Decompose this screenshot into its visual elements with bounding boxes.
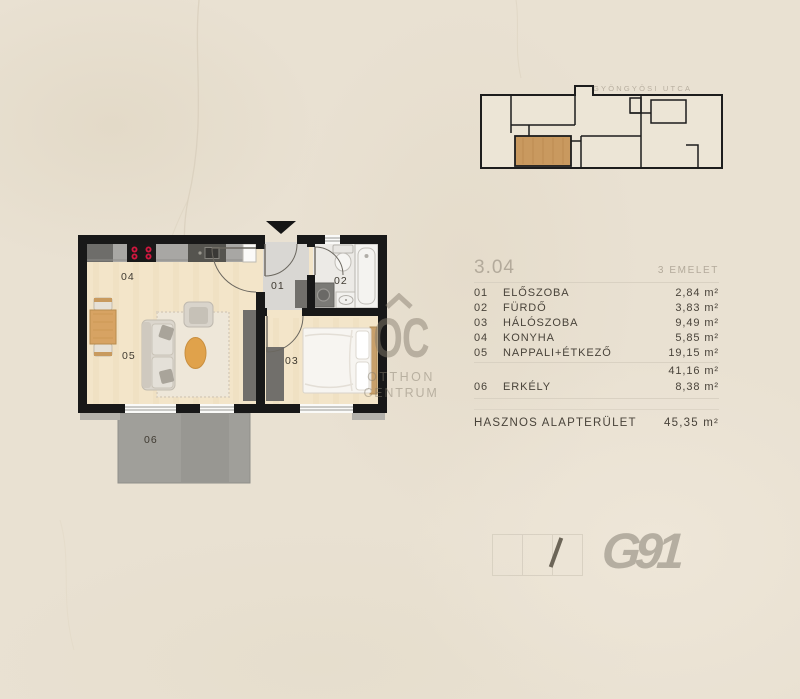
room-name: ELŐSZOBA xyxy=(503,287,675,299)
floor-plan: 04 01 02 05 03 06 xyxy=(70,214,396,490)
architect-logo xyxy=(492,530,588,578)
room-label-02: 02 xyxy=(334,275,348,287)
floorplan-sheet: GYÖNGYÖSI UTCA xyxy=(0,0,800,699)
room-label-04: 04 xyxy=(121,271,135,283)
toilet-icon xyxy=(333,245,353,271)
entrance-arrow-icon xyxy=(266,221,296,234)
room-number: 06 xyxy=(474,381,503,393)
kitchen-sink-icon xyxy=(188,244,226,262)
total-area: 45,35 m² xyxy=(664,417,719,429)
street-label: GYÖNGYÖSI UTCA xyxy=(593,84,692,93)
entrance-cabinet xyxy=(295,280,307,308)
room-row-04: 04 KONYHA 5,85 m² xyxy=(474,332,719,347)
armchair xyxy=(184,302,213,327)
room-list: 3.04 3 EMELET 01 ELŐSZOBA 2,84 m² 02 FÜR… xyxy=(474,257,719,429)
g91-logo: G91 xyxy=(600,526,734,578)
architect-logo-square xyxy=(522,534,553,576)
room-area: 2,84 m² xyxy=(675,287,719,299)
room-label-06: 06 xyxy=(144,434,158,446)
architect-logo-square xyxy=(492,534,523,576)
room-label-03: 03 xyxy=(285,355,299,367)
room-list-header: 3.04 3 EMELET xyxy=(474,257,719,283)
washing-machine-icon xyxy=(313,283,334,307)
room-label-01: 01 xyxy=(271,280,285,292)
room-row-03: 03 HÁLÓSZOBA 9,49 m² xyxy=(474,317,719,332)
watermark-line2: CENTRUM xyxy=(353,386,449,400)
room-label-05: 05 xyxy=(122,350,136,362)
room-number: 01 xyxy=(474,287,503,299)
room-name: HÁLÓSZOBA xyxy=(503,317,675,329)
room-name: NAPPALI+ÉTKEZŐ xyxy=(503,347,668,359)
unit-number: 3.04 xyxy=(474,257,515,279)
room-area: 19,15 m² xyxy=(668,347,719,359)
room-name: ERKÉLY xyxy=(503,381,675,393)
room-row-05: 05 NAPPALI+ÉTKEZŐ 19,15 m² xyxy=(474,347,719,363)
dining-table xyxy=(90,298,116,356)
floor-label: 3 EMELET xyxy=(658,265,719,276)
living-wardrobe xyxy=(243,310,256,401)
stove-icon xyxy=(127,244,156,262)
room-number: 04 xyxy=(474,332,503,344)
sofa xyxy=(142,320,175,390)
otthon-centrum-watermark: OC OTTHON CENTRUM xyxy=(353,293,449,400)
total-label: HASZNOS ALAPTERÜLET xyxy=(474,417,637,429)
room-name: FÜRDŐ xyxy=(503,302,675,314)
kitchen-cabinet xyxy=(243,244,256,262)
room-number: 02 xyxy=(474,302,503,314)
total-separator xyxy=(474,409,719,410)
watermark-line1: OTTHON xyxy=(353,370,449,384)
bedroom-wardrobe xyxy=(266,347,284,401)
watermark-monogram: OC xyxy=(368,312,433,364)
subtotal-row: 41,16 m² xyxy=(474,365,719,380)
site-plan: GYÖNGYÖSI UTCA xyxy=(478,78,724,172)
balcony xyxy=(80,413,385,483)
room-area: 9,49 m² xyxy=(675,317,719,329)
room-area: 8,38 m² xyxy=(675,381,719,393)
room-area: 5,85 m² xyxy=(675,332,719,344)
total-row: HASZNOS ALAPTERÜLET 45,35 m² xyxy=(474,417,719,429)
subtotal-area: 41,16 m² xyxy=(668,365,719,377)
room-row-02: 02 FÜRDŐ 3,83 m² xyxy=(474,302,719,317)
room-row-01: 01 ELŐSZOBA 2,84 m² xyxy=(474,287,719,302)
coffee-table xyxy=(185,338,206,369)
room-name: KONYHA xyxy=(503,332,675,344)
room-number: 05 xyxy=(474,347,503,359)
room-number: 03 xyxy=(474,317,503,329)
room-area: 3,83 m² xyxy=(675,302,719,314)
room-row-06: 06 ERKÉLY 8,38 m² xyxy=(474,381,719,399)
